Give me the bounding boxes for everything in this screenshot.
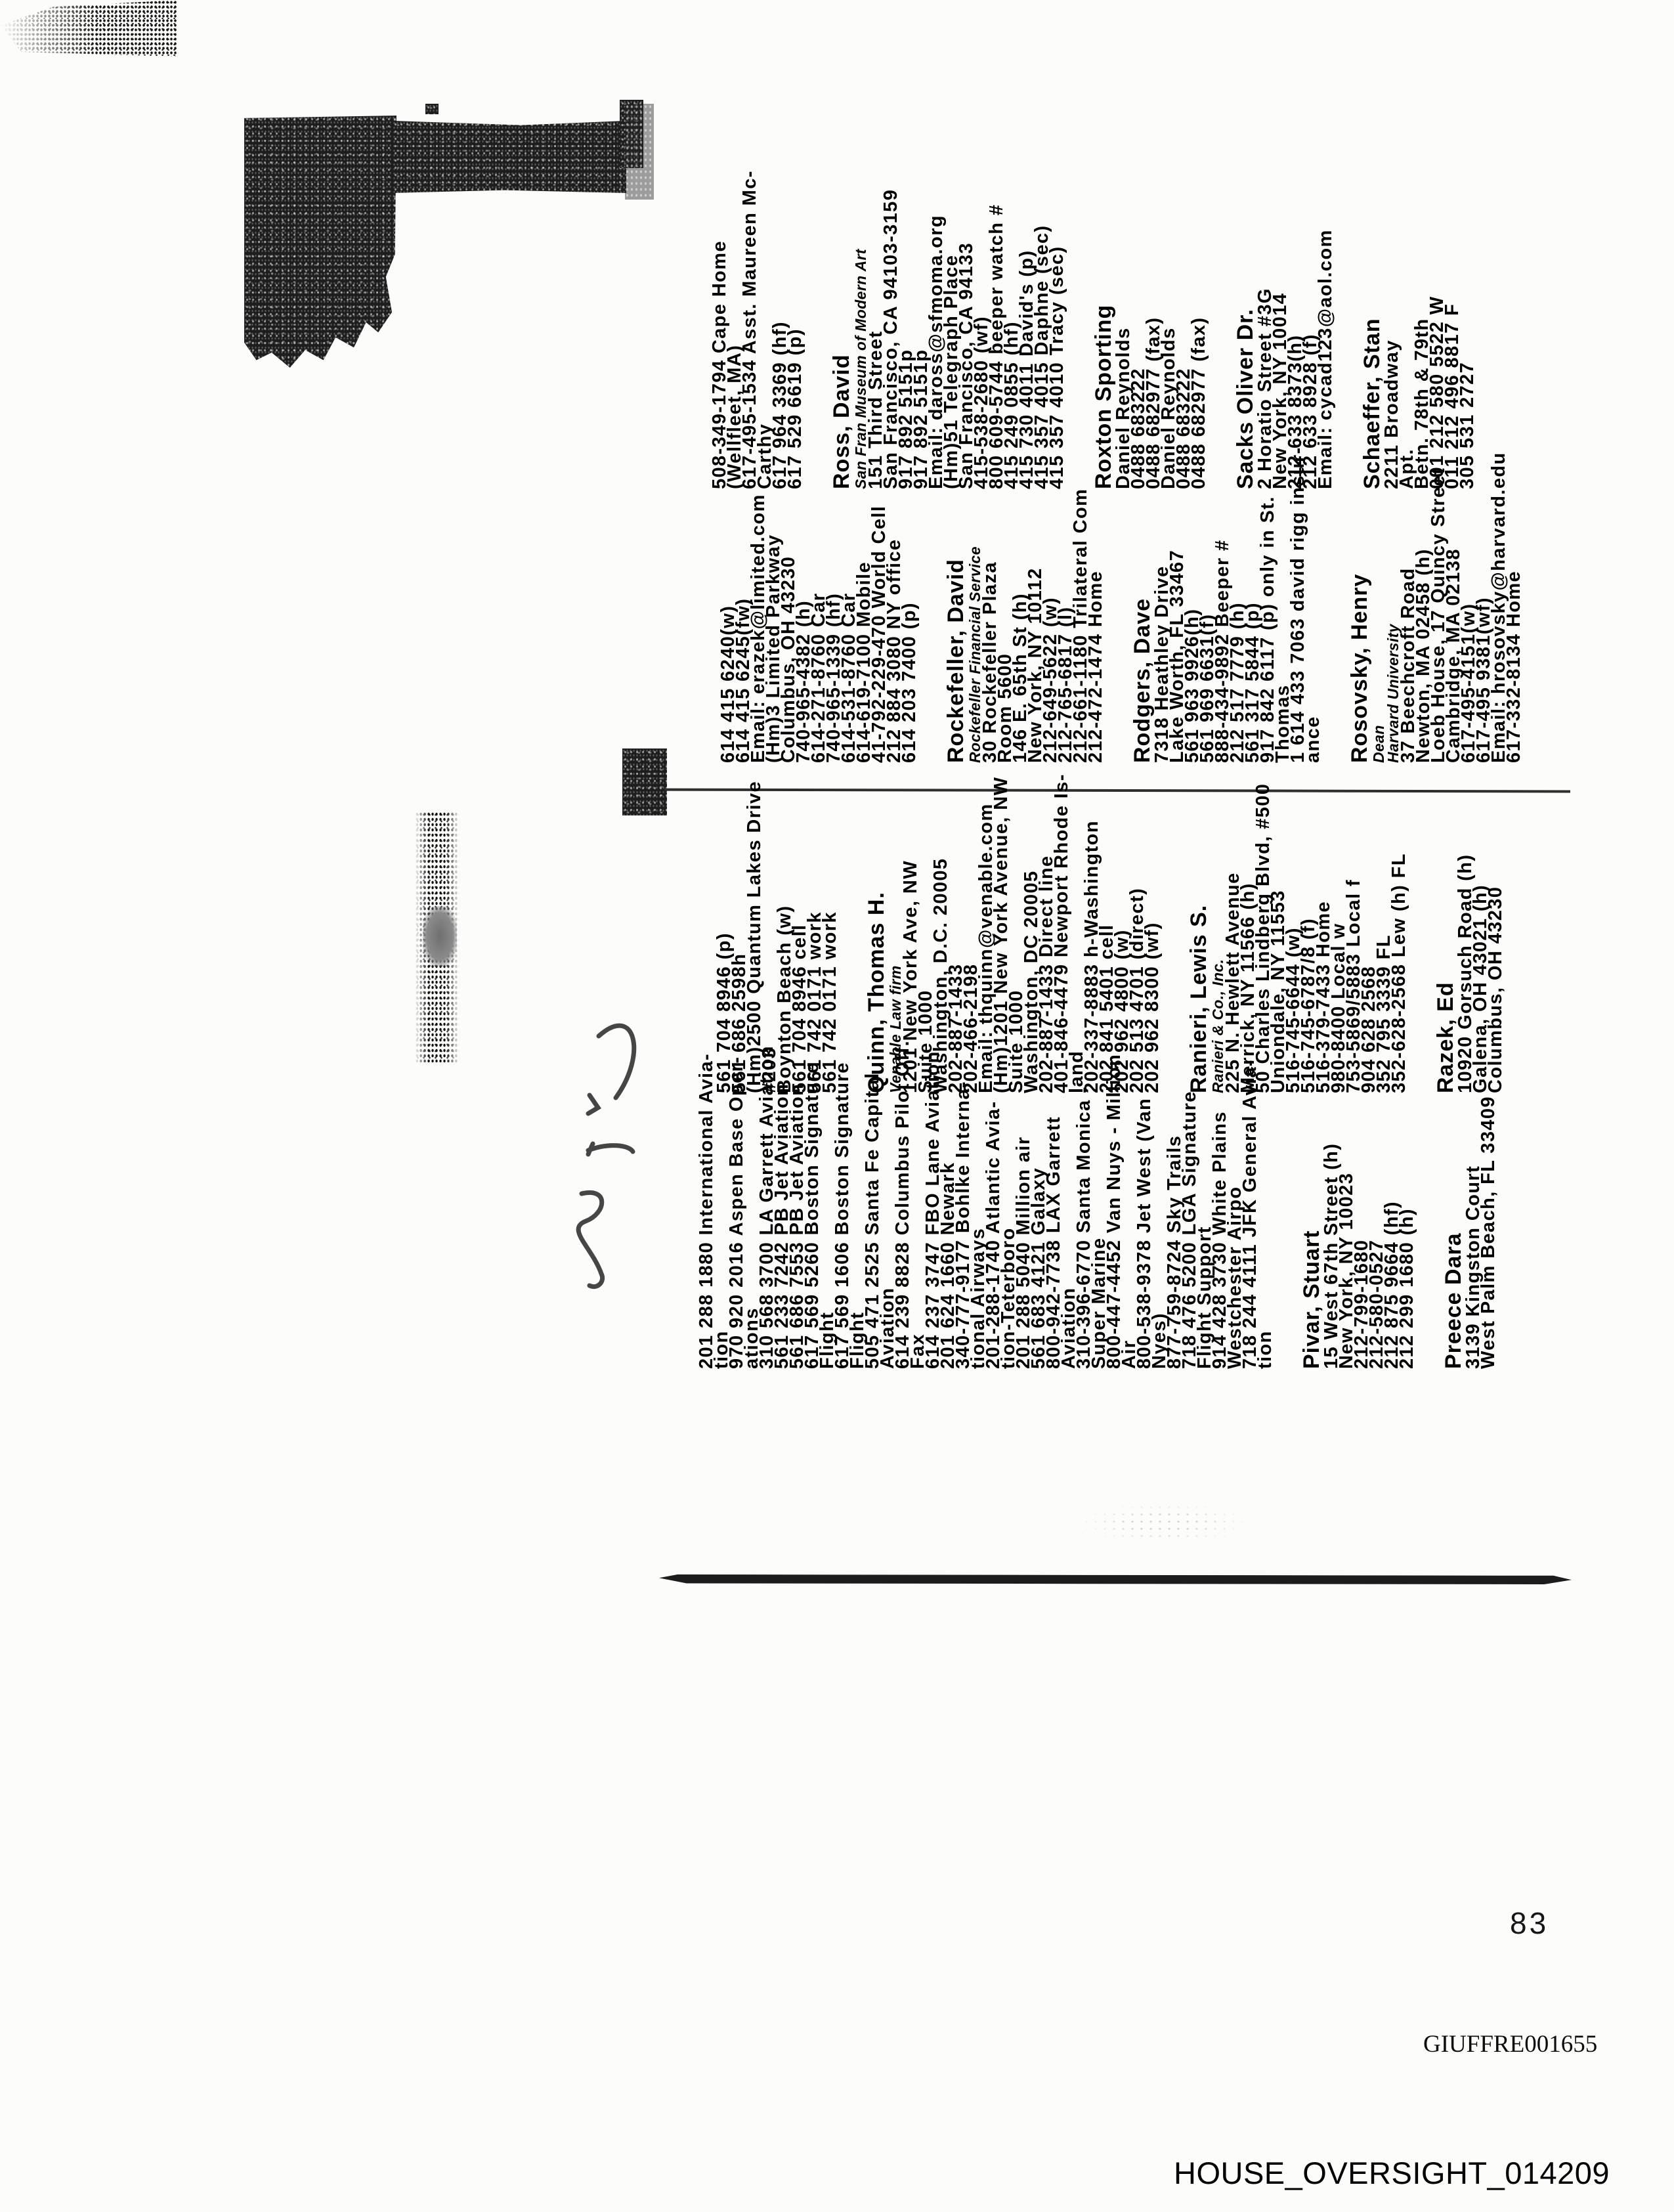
- contact-band-1: 508-349-1794 Cape Home(Wellfleet, MA)617…: [712, 170, 1475, 489]
- bates-number-giuffre: GIUFFRE001655: [1423, 2030, 1597, 2058]
- contact-entry: Rosovsky, HenryDeanHarvard University37 …: [1348, 446, 1522, 763]
- faint-smudge: [1082, 1504, 1246, 1543]
- page-number: 83: [1510, 1905, 1549, 1941]
- handwriting-marks: [551, 906, 663, 1326]
- photocopy-ink-blob-top-left: [244, 116, 397, 368]
- contact-line: West Palm Beach, FL 33409: [1481, 1040, 1496, 1369]
- contact-name: Ross, David: [830, 170, 854, 489]
- contact-name: Rockefeller, David: [945, 446, 968, 763]
- contact-line: 718 244 4111 JFK General Avia-: [1243, 1040, 1258, 1369]
- contact-entry: 508-349-1794 Cape Home(Wellfleet, MA)617…: [712, 170, 803, 489]
- page-edge-line-lower: [659, 1574, 1572, 1584]
- photocopy-grey-streak: [625, 104, 654, 200]
- bates-number-house: HOUSE_OVERSIGHT_014209: [1174, 2155, 1610, 2191]
- contact-entry: Rockefeller, DavidRockefeller Financial …: [945, 446, 1104, 763]
- contact-entry: Preece Dara3139 Kingston CourtWest Palm …: [1442, 1040, 1496, 1369]
- contact-line: Email: cycad123@aol.com: [1318, 170, 1333, 489]
- contact-line: 617 529 6619 (p): [788, 170, 803, 489]
- fold-speckle-blob: [423, 906, 457, 966]
- photocopy-ink-blob-middle-end: [622, 748, 667, 815]
- photocopy-ink-blob-top-bar: [393, 121, 626, 193]
- contact-line: 800-447-4452 Van Nuys - Million: [1107, 1040, 1122, 1369]
- contact-entry: 201 288 1880 International Avia-tion970 …: [699, 1040, 1273, 1369]
- photocopy-ink-tick: [425, 104, 439, 114]
- contact-line: 0488 682977 (fax): [1191, 170, 1207, 489]
- contact-line: 614 239 8828 Columbus Pilot Off.: [895, 1040, 911, 1369]
- contact-band-2: 614 415 6240(w)614 415 6245(fw)Email: er…: [721, 446, 1522, 763]
- photocopy-ink-blob-middle: [0, 0, 177, 56]
- contact-entry: Rodgers, Dave7318 Heathley DriveLake Wor…: [1131, 446, 1321, 763]
- contact-name: Rosovsky, Henry: [1348, 446, 1372, 763]
- contact-entry: 614 415 6240(w)614 415 6245(fw)Email: er…: [721, 446, 917, 763]
- contact-line: 2211 Broadway: [1384, 170, 1400, 489]
- contact-entry: Roxton SportingDaniel Reynolds0488 68322…: [1092, 170, 1207, 489]
- contact-entry: Ross, DavidSan Fran Museum of Modern Art…: [830, 170, 1065, 489]
- contact-line: 614 203 7400 (p): [902, 446, 917, 763]
- contact-band-4: 201 288 1880 International Avia-tion970 …: [699, 1040, 1496, 1369]
- contact-line: 415 357 4010 Tracy (sec): [1050, 170, 1065, 489]
- contact-entry: Pivar, Stuart15 West 67th Street (h)New …: [1300, 1040, 1415, 1369]
- contact-entry: Sacks Oliver Dr.2 Horatio Street #3GNew …: [1234, 170, 1333, 489]
- contact-line: 201 288 1880 International Avia-: [699, 1040, 714, 1369]
- contact-entry: Schaeffer, Stan2211 BroadwayApt.Betn. 78…: [1361, 170, 1475, 489]
- scanned-document-page: 508-349-1794 Cape Home(Wellfleet, MA)617…: [0, 0, 1674, 2212]
